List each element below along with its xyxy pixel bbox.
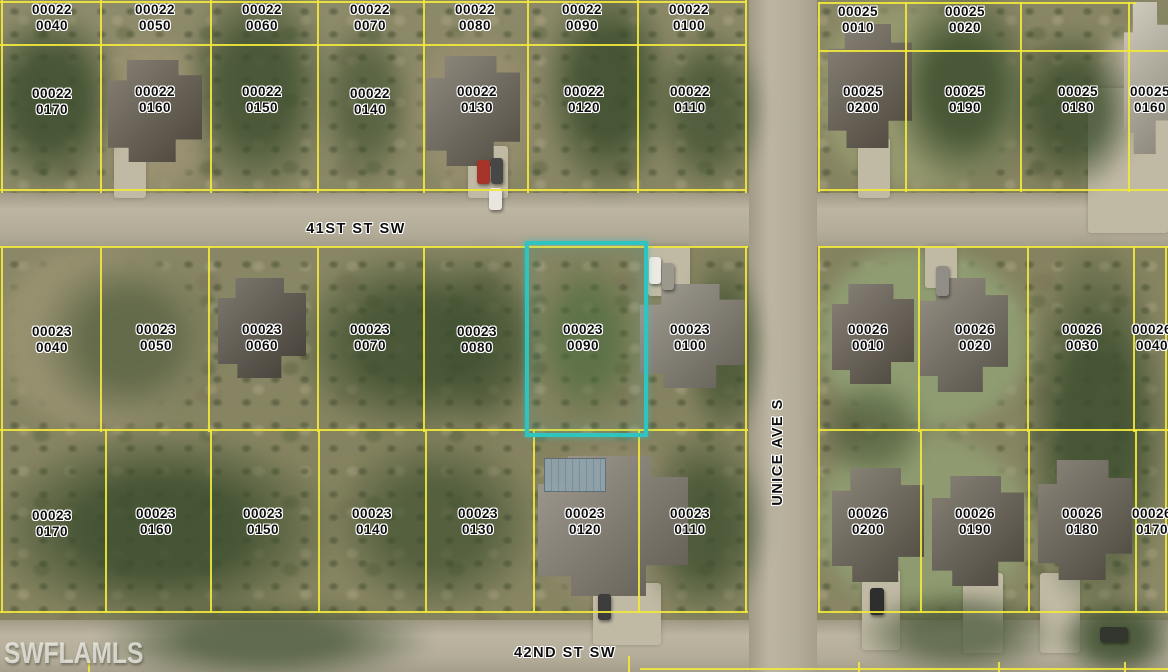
parcel-label: 000220060 <box>242 2 282 33</box>
parcel-label: 000230050 <box>136 322 176 353</box>
parcel-label: 000220100 <box>669 2 709 33</box>
parcel-label: 000220040 <box>32 2 72 33</box>
parcel-label: 000220150 <box>242 84 282 115</box>
parcel-boundary-line <box>0 611 748 613</box>
house-roof <box>1038 460 1132 580</box>
parcel-boundary-line <box>317 246 319 432</box>
parcel-boundary-line <box>745 0 747 193</box>
vehicle <box>649 257 661 284</box>
parcel-boundary-line <box>905 2 907 192</box>
parcel-boundary-line <box>1020 2 1022 192</box>
parcel-label: 000230160 <box>136 506 176 537</box>
parcel-label: 000220130 <box>457 84 497 115</box>
parcel-boundary-line <box>1165 429 1167 613</box>
parcel-label: 000230120 <box>565 506 605 537</box>
tree-patch <box>0 5 125 195</box>
parcel-label: 000250190 <box>945 84 985 115</box>
parcel-label: 000260190 <box>955 506 995 537</box>
house-roof <box>1124 2 1168 154</box>
parcel-boundary-line <box>1128 2 1130 192</box>
house-roof <box>108 60 202 162</box>
house-roof <box>828 24 912 148</box>
parcel-boundary-line <box>1028 429 1030 613</box>
parcel-label: 000220110 <box>670 84 710 115</box>
parcel-boundary-line <box>423 0 425 193</box>
lawn-patch <box>820 432 1030 610</box>
street-label-unice-ave-s: UNICE AVE S <box>770 398 786 506</box>
parcel-label: 000220170 <box>32 86 72 117</box>
vehicle <box>477 160 490 184</box>
parcel-boundary-line <box>0 1 746 3</box>
parcel-label: 000260020 <box>955 322 995 353</box>
driveway <box>925 246 957 288</box>
parcel-label: 000250020 <box>945 4 985 35</box>
tree-patch <box>540 0 675 200</box>
parcel-boundary-line <box>1165 246 1167 432</box>
parcel-label: 000230040 <box>32 324 72 355</box>
house-roof <box>832 284 914 384</box>
parcel-boundary-line <box>818 611 1168 613</box>
parcel-boundary-line <box>745 246 747 432</box>
parcel-label: 000230150 <box>243 506 283 537</box>
parcel-boundary-line <box>1135 429 1137 613</box>
lawn-patch <box>418 35 533 190</box>
parcel-boundary-line <box>527 0 529 193</box>
parcel-boundary-line <box>100 0 102 193</box>
aerial-imagery-background: 0002200400002200500002200600002200700002… <box>0 0 1168 672</box>
driveway <box>858 138 890 198</box>
house-roof <box>426 56 520 166</box>
parcel-label: 000260040 <box>1132 322 1168 353</box>
parcel-label: 000250200 <box>843 84 883 115</box>
road-41st-st-sw <box>0 193 1168 247</box>
driveway <box>468 146 508 198</box>
house-roof <box>918 278 1008 392</box>
tree-patch <box>35 252 225 427</box>
parcel-label: 000220070 <box>350 2 390 33</box>
highlighted-parcel-outline <box>525 241 648 437</box>
parcel-boundary-line <box>423 246 425 432</box>
road-unice-ave-s <box>749 0 817 672</box>
parcel-label: 000250160 <box>1130 84 1168 115</box>
parcel-label: 000250010 <box>838 4 878 35</box>
parcel-boundary-line <box>1 246 3 432</box>
parcel-boundary-line <box>637 0 639 193</box>
street-label-41st-st-sw: 41ST ST SW <box>306 221 406 237</box>
parcel-boundary-line <box>818 50 1168 52</box>
tree-patch <box>182 0 332 200</box>
parcel-boundary-line <box>0 44 746 46</box>
parcel-boundary-line <box>818 246 820 432</box>
parcel-boundary-line <box>317 0 319 193</box>
parcel-boundary-line <box>1 429 3 613</box>
driveway <box>114 146 146 198</box>
house-roof <box>218 278 306 378</box>
mls-aerial-parcel-map: 0002200400002200500002200600002200700002… <box>0 0 1168 672</box>
parcel-boundary-line <box>208 246 210 432</box>
parcel-label: 000220120 <box>564 84 604 115</box>
parcel-label: 000230080 <box>457 324 497 355</box>
parcel-boundary-line <box>818 429 820 613</box>
vehicle <box>936 266 949 296</box>
pool-screen-enclosure <box>544 458 606 492</box>
vehicle <box>662 263 674 290</box>
parcel-label: 000260010 <box>848 322 888 353</box>
parcel-label: 000220160 <box>135 84 175 115</box>
parcel-boundary-line <box>533 429 535 613</box>
house-roof <box>640 284 746 388</box>
parcel-label: 000230130 <box>458 506 498 537</box>
parcel-label: 000260030 <box>1062 322 1102 353</box>
parcel-label: 000260200 <box>848 506 888 537</box>
parcel-boundary-line <box>425 429 427 613</box>
parcel-label: 000260170 <box>1132 506 1168 537</box>
tree-patch <box>288 248 543 438</box>
parcel-label: 000230170 <box>32 508 72 539</box>
parcel-boundary-line <box>1027 246 1029 432</box>
parcel-boundary-line <box>318 429 320 613</box>
vehicle <box>598 594 611 620</box>
lawn-patch <box>0 248 205 428</box>
lawn-patch <box>542 445 697 615</box>
house-roof <box>932 476 1024 586</box>
parcel-boundary-line <box>920 429 922 613</box>
parcel-boundary-line <box>918 246 920 432</box>
parcel-label: 000250180 <box>1058 84 1098 115</box>
tree-patch <box>0 428 340 628</box>
tree-patch <box>318 15 413 190</box>
parcel-boundary-line <box>105 429 107 613</box>
parcel-label: 000220050 <box>135 2 175 33</box>
mls-watermark: SWFLAMLS <box>4 637 143 671</box>
parcel-boundary-line <box>818 189 1168 191</box>
parcel-label: 000230100 <box>670 322 710 353</box>
house-roof <box>832 468 924 582</box>
parcel-boundary-line <box>1 0 3 193</box>
parcel-label: 000220080 <box>455 2 495 33</box>
vehicle <box>870 588 884 615</box>
parcel-boundary-line <box>818 2 820 192</box>
parcel-boundary-line <box>100 246 102 432</box>
tree-patch <box>888 0 1038 190</box>
tree-patch <box>1005 25 1140 195</box>
parcel-label: 000220090 <box>562 2 602 33</box>
parcel-label: 000230140 <box>352 506 392 537</box>
parcel-boundary-line <box>0 189 746 191</box>
parcel-label: 000230110 <box>670 506 710 537</box>
parcel-boundary-line <box>210 0 212 193</box>
driveway <box>648 246 690 296</box>
tree-patch <box>815 375 930 485</box>
parcel-label: 000260180 <box>1062 506 1102 537</box>
parcel-boundary-line <box>745 429 747 613</box>
parcel-boundary-line <box>1133 246 1135 432</box>
parcel-label: 000230060 <box>242 322 282 353</box>
lawn-patch <box>96 40 208 190</box>
parcel-boundary-line <box>818 2 1136 4</box>
parcel-boundary-line <box>818 429 1168 431</box>
parcel-boundary-line <box>210 429 212 613</box>
tree-patch <box>1022 238 1168 623</box>
lawn-patch <box>820 5 1020 190</box>
vehicle <box>491 158 503 184</box>
house-roof <box>538 456 688 596</box>
parcel-label: 000220140 <box>350 86 390 117</box>
lawn-patch <box>820 250 1030 428</box>
tree-patch <box>328 432 543 617</box>
parcel-label: 000230070 <box>350 322 390 353</box>
parcel-boundary-line <box>638 429 640 613</box>
street-label-42nd-st-sw: 42ND ST SW <box>514 645 616 661</box>
